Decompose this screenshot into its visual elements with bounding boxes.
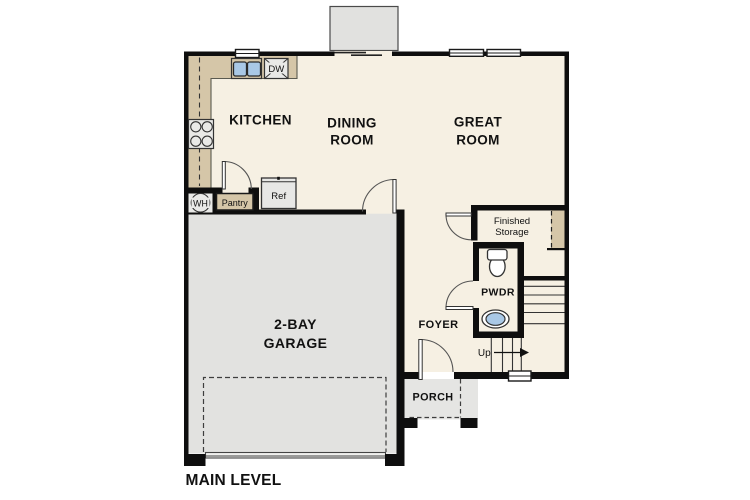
svg-text:Finished: Finished: [494, 216, 530, 227]
svg-text:PWDR: PWDR: [481, 287, 515, 299]
svg-text:DINING: DINING: [327, 115, 377, 130]
svg-text:ROOM: ROOM: [330, 132, 374, 147]
svg-text:Ref: Ref: [271, 191, 286, 202]
svg-text:PORCH: PORCH: [413, 392, 454, 404]
svg-text:FOYER: FOYER: [419, 319, 459, 331]
svg-text:GARAGE: GARAGE: [264, 335, 328, 351]
svg-text:GREAT: GREAT: [454, 114, 503, 129]
svg-text:KITCHEN: KITCHEN: [229, 112, 292, 127]
svg-text:2-BAY: 2-BAY: [274, 316, 317, 332]
svg-text:DW: DW: [268, 64, 284, 75]
svg-text:Storage: Storage: [495, 227, 529, 238]
svg-text:WH: WH: [193, 198, 208, 208]
svg-text:ROOM: ROOM: [456, 132, 500, 147]
svg-text:MAIN LEVEL: MAIN LEVEL: [186, 472, 282, 489]
svg-text:Up: Up: [478, 348, 491, 359]
svg-text:Pantry: Pantry: [222, 198, 249, 208]
